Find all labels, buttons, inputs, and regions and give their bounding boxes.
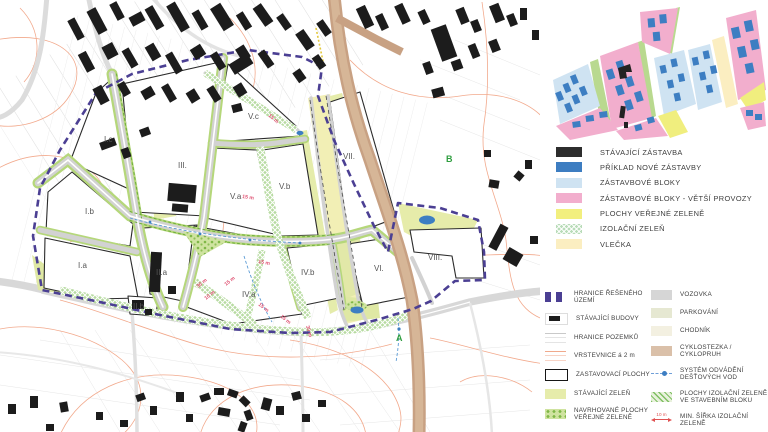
swatch-development-blocks: [556, 178, 582, 188]
legend-label: VRSTEVNICE á 2 m: [574, 352, 635, 359]
legend-item: 10 m MIN. ŠÍŘKA IZOLAČNÍ ZELENĚ: [651, 413, 768, 428]
legend-item: PARKOVÁNÍ: [651, 308, 768, 318]
legend-item: VLEČKA: [556, 239, 752, 249]
legend-label: HRANICE POZEMKŮ: [574, 334, 638, 341]
master-plan-map: I.a I.b I.c II.a II.b III. IV.a IV.b V.a…: [0, 0, 540, 432]
zone-label: V.b: [279, 182, 291, 191]
swatch-siding: [556, 239, 582, 249]
swatch-parking: [651, 308, 672, 318]
swatch-bike-path: [651, 346, 672, 356]
swatch-stormwater-system: [651, 369, 672, 379]
legend-item: HRANICE ŘEŠENÉHO ÚZEMÍ: [545, 290, 650, 305]
swatch-existing-development: [556, 147, 582, 157]
legend-label: MIN. ŠÍŘKA IZOLAČNÍ ZELENĚ: [680, 413, 768, 428]
legend-symbols-right: VOZOVKA PARKOVÁNÍ CHODNÍK CYKLOSTEZKA / …: [651, 290, 768, 427]
swatch-proposed-public-green: [545, 409, 566, 419]
legend-label: STÁVAJÍCÍ ZÁSTAVBA: [600, 148, 683, 157]
legend-item: SYSTÉM ODVÁDĚNÍ DEŠŤOVÝCH VOD: [651, 367, 768, 382]
swatch-public-green: [556, 209, 582, 219]
legend-item: ZASTAVOVACÍ PLOCHY: [545, 369, 650, 381]
legend-item: VOZOVKA: [651, 290, 768, 300]
legend-label: SYSTÉM ODVÁDĚNÍ DEŠŤOVÝCH VOD: [680, 367, 768, 382]
legend-item: HRANICE POZEMKŮ: [545, 333, 650, 343]
legend-item: STÁVAJÍCÍ BUDOVY: [545, 313, 650, 325]
swatch-roadway: [651, 290, 672, 300]
zone-label: VII.: [343, 152, 355, 161]
legend-symbols-left: HRANICE ŘEŠENÉHO ÚZEMÍ STÁVAJÍCÍ BUDOVY …: [545, 290, 650, 422]
legend-label: STÁVAJÍCÍ BUDOVY: [576, 315, 639, 322]
legend-land-use: STÁVAJÍCÍ ZÁSTAVBA PŘÍKLAD NOVÉ ZÁSTAVBY…: [556, 147, 752, 249]
swatch-parcel-lines: [545, 333, 566, 343]
legend-label: VOZOVKA: [680, 291, 712, 298]
swatch-isolation-green-in-block: [651, 392, 672, 402]
swatch-contours: [545, 351, 566, 361]
legend-label: ZASTAVOVACÍ PLOCHY: [576, 371, 650, 378]
legend-label: ZÁSTAVBOVÉ BLOKY: [600, 178, 681, 187]
legend-item: STÁVAJÍCÍ ZELEŇ: [545, 389, 650, 399]
zone-label: IV.a: [242, 290, 256, 299]
swatch-development-blocks-larger: [556, 193, 582, 203]
zone-label: I.b: [85, 207, 94, 216]
legend-item: ZÁSTAVBOVÉ BLOKY: [556, 178, 752, 188]
legend-label: STÁVAJÍCÍ ZELEŇ: [574, 390, 630, 397]
legend-item: STÁVAJÍCÍ ZÁSTAVBA: [556, 147, 752, 157]
legend-label: PLOCHY IZOLAČNÍ ZELENĚ VE STAVEBNÍM BLOK…: [680, 390, 768, 405]
plan-sheet: I.a I.b I.c II.a II.b III. IV.a IV.b V.a…: [0, 0, 768, 432]
legend-label: HRANICE ŘEŠENÉHO ÚZEMÍ: [574, 290, 650, 305]
legend-label: VLEČKA: [600, 240, 631, 249]
legend-item: NAVRHOVANÉ PLOCHY VEŘEJNÉ ZELENĚ: [545, 407, 650, 422]
legend-item: PLOCHY IZOLAČNÍ ZELENĚ VE STAVEBNÍM BLOK…: [651, 390, 768, 405]
zone-label: VIII.: [428, 253, 442, 262]
legend-label: NAVRHOVANÉ PLOCHY VEŘEJNÉ ZELENĚ: [574, 407, 650, 422]
legend-label: CYKLOSTEZKA / CYKLOPRUH: [680, 344, 768, 359]
schematic-inset: [540, 2, 768, 142]
legend-item: ZÁSTAVBOVÉ BLOKY - VĚTŠÍ PROVOZY: [556, 193, 752, 203]
zone-label: III.: [178, 161, 187, 170]
arrow-dimension-text: 10 m: [656, 412, 666, 417]
legend-item: PŘÍKLAD NOVÉ ZÁSTAVBY: [556, 162, 752, 172]
legend-label: PARKOVÁNÍ: [680, 309, 718, 316]
zone-label: I.a: [78, 261, 87, 270]
arrow-bar: [655, 419, 668, 420]
swatch-min-width-arrow: 10 m: [651, 415, 672, 425]
map-canvas: I.a I.b I.c II.a II.b III. IV.a IV.b V.a…: [0, 0, 540, 432]
legend-item: IZOLAČNÍ ZELEŇ: [556, 224, 752, 234]
legend-item: CYKLOSTEZKA / CYKLOPRUH: [651, 344, 768, 359]
swatch-existing-green: [545, 389, 566, 399]
legend-item: CHODNÍK: [651, 326, 768, 336]
area-letter-a: A: [396, 333, 403, 343]
legend-panel: STÁVAJÍCÍ ZÁSTAVBA PŘÍKLAD NOVÉ ZÁSTAVBY…: [540, 0, 768, 432]
zone-label: II.a: [156, 268, 168, 277]
legend-label: ZÁSTAVBOVÉ BLOKY - VĚTŠÍ PROVOZY: [600, 194, 752, 203]
legend-label: IZOLAČNÍ ZELEŇ: [600, 224, 665, 233]
zone-label: V.a: [230, 192, 242, 201]
zone-label: VI.: [374, 264, 384, 273]
swatch-new-development-example: [556, 162, 582, 172]
legend-label: PLOCHY VEŘEJNÉ ZELENĚ: [600, 209, 705, 218]
swatch-isolation-green: [556, 224, 582, 234]
swatch-sidewalk: [651, 326, 672, 336]
swatch-buildable-areas: [545, 369, 568, 381]
legend-item: PLOCHY VEŘEJNÉ ZELENĚ: [556, 209, 752, 219]
legend-item: VRSTEVNICE á 2 m: [545, 351, 650, 361]
swatch-boundary: [545, 292, 566, 302]
arrow-right-icon: [668, 418, 672, 422]
zone-label: II.b: [133, 302, 145, 311]
area-letter-b: B: [446, 154, 453, 164]
zone-label: I.c: [104, 135, 112, 144]
zone-label: V.c: [248, 112, 259, 121]
legend-label: PŘÍKLAD NOVÉ ZÁSTAVBY: [600, 163, 702, 172]
swatch-existing-buildings: [545, 313, 568, 325]
legend-label: CHODNÍK: [680, 327, 710, 334]
zone-label: IV.b: [301, 268, 315, 277]
